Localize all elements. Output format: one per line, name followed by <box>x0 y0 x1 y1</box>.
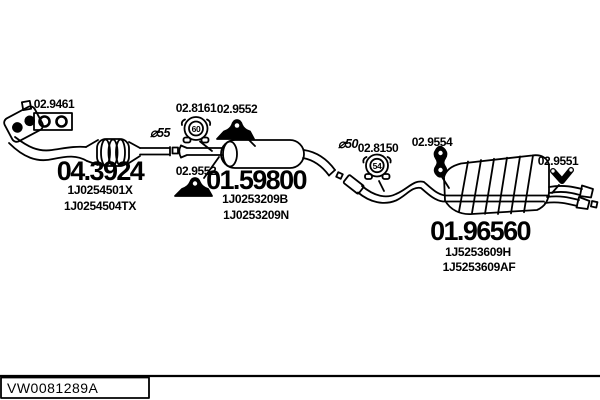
fitting-label: 02.9554 <box>412 136 453 148</box>
tail-pipe-tips <box>545 186 597 210</box>
oem-code: 1J0253209B <box>222 193 288 205</box>
diameter-marker: ⌀50 <box>338 138 358 151</box>
pointer-line <box>379 181 384 191</box>
oem-code: 1J0253209N <box>223 209 289 221</box>
part-number-front-pipe: 04.3924 <box>57 158 143 185</box>
fitting-label: 02.8161 <box>176 102 217 114</box>
catalog-code: VW0081289A <box>7 381 98 395</box>
oem-code: 1J5253609H <box>445 246 511 258</box>
clamp-size: 54 <box>373 162 382 171</box>
part-number-rear-silencer: 01.96560 <box>430 218 530 245</box>
oem-code: 1J0254504TX <box>64 200 136 212</box>
fitting-label: 02.9551 <box>538 155 579 167</box>
clamp-size: 60 <box>192 125 201 134</box>
fitting-label: 02.9552 <box>217 103 258 115</box>
hanger-icon <box>435 147 450 189</box>
clamp-icon <box>363 155 390 192</box>
pipe-coupling <box>343 175 364 195</box>
exhaust-parts-diagram: 02.9461 02.8161 02.9552 02.9552 02.8150 … <box>0 0 600 400</box>
oem-code: 1J5253609AF <box>443 261 516 273</box>
clamp-icon <box>182 117 212 151</box>
fitting-label: 02.9461 <box>34 98 75 110</box>
pipe-joint-icon <box>173 148 179 154</box>
oem-code: 1J0254501X <box>67 184 132 196</box>
fitting-label: 02.8150 <box>358 142 399 154</box>
pointer-line <box>442 177 449 188</box>
diameter-marker: ⌀55 <box>150 127 170 140</box>
hanger-icon <box>551 168 572 193</box>
rubber-mount-icon <box>217 120 255 146</box>
part-number-middle-silencer: 01.59800 <box>206 167 306 194</box>
gasket-icon <box>34 113 72 130</box>
pipe-joint-icon <box>336 172 343 179</box>
middle-muffler-inlet-pipe <box>179 146 222 158</box>
rear-muffler <box>444 155 549 214</box>
tail-pipe <box>358 181 549 202</box>
pipe-end-square-icon <box>591 201 598 208</box>
